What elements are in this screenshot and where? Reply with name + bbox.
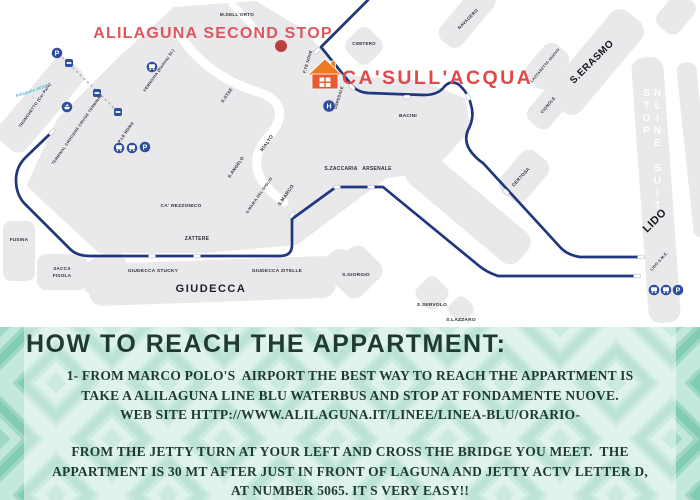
map-canvas: P P bbox=[0, 0, 700, 327]
instruction-line-website-url: WEB SITE HTTP://WWW.ALILAGUNA.IT/LINEE/L… bbox=[0, 405, 700, 425]
instructions-paragraph-1: 1- FROM MARCO POLO'S AIRPORT THE BEST WA… bbox=[0, 366, 700, 425]
callout-second-stop: ALILAGUNA SECOND STOP bbox=[93, 25, 332, 42]
label-m-dellorto: M.DELL'ORTO bbox=[220, 12, 254, 17]
island-fusina bbox=[6, 224, 32, 278]
island-shape bbox=[40, 257, 84, 287]
svg-text:P: P bbox=[676, 288, 681, 295]
label-zattere: ZATTERE bbox=[185, 236, 210, 242]
bus-icon bbox=[649, 285, 660, 296]
svg-text:H: H bbox=[326, 104, 331, 111]
label-s-servolo: S.SERVOLO bbox=[417, 302, 447, 308]
screenshot-root: P P bbox=[0, 0, 700, 500]
callout-property-name: CA'SULL'ACQUA bbox=[342, 67, 533, 89]
ship-icon bbox=[62, 102, 73, 113]
label-s-zaccaria: S.ZACCARIA bbox=[324, 166, 357, 172]
map-watermark-text: NLINE SUIT STOP bbox=[641, 88, 663, 268]
route-stop-marker bbox=[333, 185, 340, 189]
svg-text:P: P bbox=[143, 145, 148, 152]
label-giudecca: GIUDECCA bbox=[176, 283, 247, 295]
route-stop-marker bbox=[367, 185, 374, 189]
instruction-line: TAKE A ALILAGUNA LINE BLU WATERBUS AND S… bbox=[0, 386, 700, 406]
instruction-line: APPARTMENT IS 30 MT AFTER JUST IN FRONT … bbox=[0, 462, 700, 482]
label-fisola: FISOLA bbox=[53, 273, 72, 278]
monorail-icon bbox=[114, 108, 122, 116]
monorail-icon bbox=[65, 59, 73, 67]
label-s-lazzaro: S.LAZZARO bbox=[446, 317, 476, 323]
route-stop-marker bbox=[403, 95, 410, 99]
svg-text:P: P bbox=[55, 51, 60, 58]
label-giudecca-stucky: GIUDECCA STUCKY bbox=[128, 268, 179, 274]
label-giudecca-zitelle: GIUDECCA ZITELLE bbox=[252, 268, 303, 274]
route-stop-marker bbox=[193, 254, 200, 258]
label-sacca: SACCA bbox=[53, 266, 71, 271]
label-ca-rezzonico: CA' REZZONICO bbox=[161, 203, 202, 209]
route-stop-marker bbox=[633, 274, 640, 278]
instruction-line: AT NUMBER 5065. IT S VERY EASY!! bbox=[0, 481, 700, 500]
label-fusina: FUSINA bbox=[10, 237, 29, 242]
bus-icon bbox=[114, 143, 125, 154]
label-s-giorgio: S.GIORGIO bbox=[342, 272, 370, 278]
parking-icon: P bbox=[673, 285, 684, 296]
instructions-heading: HOW TO REACH THE APPARTMENT: bbox=[26, 330, 506, 359]
label-cimitero: CIMITERO bbox=[352, 41, 376, 46]
instructions-paragraph-2: FROM THE JETTY TURN AT YOUR LEFT AND CRO… bbox=[0, 442, 700, 500]
venice-route-map: P P bbox=[0, 0, 700, 327]
parking-icon: P bbox=[140, 142, 151, 153]
label-arsenale: ARSENALE bbox=[362, 166, 392, 172]
label-bacini: BACINI bbox=[399, 113, 417, 119]
parking-icon: P bbox=[52, 48, 63, 59]
instructions-band: HOW TO REACH THE APPARTMENT: 1- FROM MAR… bbox=[0, 327, 700, 500]
bus-icon bbox=[661, 285, 672, 296]
route-stop-marker bbox=[148, 254, 155, 258]
instruction-line: FROM THE JETTY TURN AT YOUR LEFT AND CRO… bbox=[0, 442, 700, 462]
bus-icon bbox=[127, 143, 138, 154]
instruction-line: 1- FROM MARCO POLO'S AIRPORT THE BEST WA… bbox=[0, 366, 700, 386]
